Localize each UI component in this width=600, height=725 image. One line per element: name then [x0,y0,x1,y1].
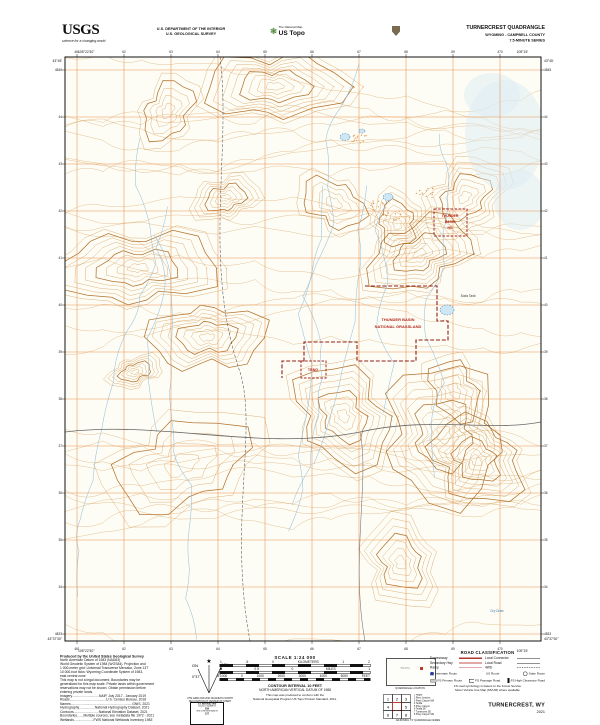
svg-text:43°37'30": 43°37'30" [544,637,559,641]
expressway-line [459,658,482,659]
svg-text:68: 68 [404,50,408,54]
fs-high-clearance-icon [507,678,509,683]
interstate-label: Interstate Route [435,672,457,676]
contour-interval: CONTOUR INTERVAL 10 FEET [205,684,385,689]
svg-text:4833: 4833 [55,632,62,636]
svg-text:66: 66 [310,647,314,651]
4wd-line [517,668,540,669]
svg-text:34: 34 [544,585,548,589]
fs-primary-icon [430,679,437,683]
fs-passage-label: FS Passage Road [475,679,500,683]
vertical-datum: NORTH AMERICAN VERTICAL DATUM OF 1988 [205,689,385,693]
usng-box: U.S. NATIONAL GRID 100,000-m SQUARE ID G… [190,702,224,725]
expressway-label: Expressway [430,657,459,661]
svg-text:67: 67 [357,50,361,54]
svg-text:THUNDER BASIN: THUNDER BASIN [381,317,414,322]
svg-text:42: 42 [58,209,62,213]
sheet-year: 2021 [400,710,545,715]
svg-text:4833: 4833 [544,632,551,636]
svg-text:38: 38 [58,397,62,401]
topo-map-canvas: THUNDERBASINNGTHUNDER BASINNATIONAL GRAS… [0,0,600,660]
svg-text:62: 62 [122,647,126,651]
svg-text:44: 44 [58,115,62,119]
adj-cell-4: 4 [387,704,390,709]
svg-text:42: 42 [544,209,548,213]
us-route-label: US Route [486,672,499,676]
svg-text:35: 35 [544,538,548,542]
svg-text:65: 65 [263,647,267,651]
svg-text:39: 39 [58,350,62,354]
standard-note-line2: National Geospatial Program US Topo Prod… [205,698,385,702]
svg-text:65: 65 [263,50,267,54]
svg-text:37: 37 [544,444,548,448]
sheet-title-block: TURNERCREST, WY 2021 [400,702,545,714]
svg-text:THUNDER: THUNDER [442,214,459,218]
svg-text:37: 37 [58,444,62,448]
gn-declination-value: 0°37' [192,675,200,679]
svg-text:43°45': 43°45' [52,59,62,63]
svg-text:38: 38 [544,397,548,401]
svg-text:105°22'30": 105°22'30" [78,50,95,54]
svg-text:43°37'30": 43°37'30" [47,637,62,641]
quad-location-dot [420,667,423,670]
adjoining-caption-wrap: ADJOINING 7.5' QUADRANGLE NAMES [370,719,466,722]
fs-passage-icon [469,679,474,683]
adj-cell-1: 1 [387,696,390,701]
interstate-shield-icon [430,672,434,676]
adj-cell-6: 6 [387,712,390,717]
svg-text:43°45': 43°45' [544,59,554,63]
adj-cell-2: 2 [396,696,399,701]
scale-block: SCALE 1:24 000 1.50KILOMETERS12 10.50MIL… [205,655,385,702]
roads-note-line2: Motor Vehicle Use Map (MVUM) where avail… [430,689,545,693]
svg-text:41: 41 [544,256,548,260]
sheet-name: TURNERCREST, WY [400,702,545,708]
svg-text:67: 67 [357,647,361,651]
adjoining-caption: ADJOINING 7.5' QUADRANGLE NAMES [370,719,466,722]
svg-text:43: 43 [58,162,62,166]
svg-text:64: 64 [216,647,220,651]
svg-text:62: 62 [122,50,126,54]
4wd-label: 4WD [485,666,517,670]
svg-text:Dry Draw: Dry Draw [490,609,504,613]
state-route-circle-icon [523,672,528,677]
state-name: Wyoming [387,667,423,669]
fs-primary-label: FS Primary Route [438,679,463,683]
adj-cell-7: 7 [396,712,399,717]
state-locator-map: Wyoming [386,658,436,686]
local-road-line [517,663,540,664]
usng-zone: 13T [191,712,223,715]
us-route-shield-icon [481,672,485,676]
production-credits: Produced by the United States Geological… [60,654,199,722]
svg-text:43: 43 [544,162,548,166]
svg-text:39: 39 [544,350,548,354]
feet-scale-bar [220,678,371,681]
svg-text:TBNG: TBNG [308,368,318,372]
svg-text:63: 63 [169,647,173,651]
svg-text:41: 41 [58,256,62,260]
svg-text:NG: NG [447,226,452,230]
svg-text:BASIN: BASIN [445,220,456,224]
credits-lines: North American Datum of 1983 (NAD83)Worl… [60,658,199,721]
svg-text:40: 40 [544,303,548,307]
svg-text:36: 36 [58,491,62,495]
secondary-hwy-label: Secondary Hwy [430,661,459,665]
svg-text:105°15': 105°15' [517,50,529,54]
svg-text:40: 40 [58,303,62,307]
local-connector-label: Local Connector [485,657,517,661]
svg-text:4845: 4845 [544,68,551,72]
svg-text:NATIONAL GRASSLAND: NATIONAL GRASSLAND [375,324,422,329]
secondary-hwy-line [459,663,482,664]
state-route-label: State Route [529,672,545,676]
roads-title: ROAD CLASSIFICATION [430,650,545,655]
svg-text:44: 44 [544,115,548,119]
svg-text:34: 34 [58,585,62,589]
svg-text:68: 68 [404,647,408,651]
svg-text:64: 64 [216,50,220,54]
svg-text:35: 35 [58,538,62,542]
grid-north-label: GN [192,663,198,668]
adj-cell-3: 3 [405,696,408,701]
svg-text:105°22'30": 105°22'30" [78,649,95,653]
fs-high-clearance-label: FS High Clearance Road [511,679,545,683]
svg-text:4845: 4845 [55,68,62,72]
svg-text:Soda Tank: Soda Tank [460,294,476,298]
scale-title: SCALE 1:24 000 [205,655,385,660]
ramp-label: Ramp [430,666,459,670]
local-road-label: Local Road [485,661,517,665]
svg-text:63: 63 [169,50,173,54]
local-connector-line [517,658,540,659]
svg-text:36: 36 [544,491,548,495]
road-classification-legend: ROAD CLASSIFICATION Expressway Local Con… [430,650,545,693]
svg-text:470: 470 [497,50,503,54]
ramp-line [459,668,482,669]
svg-text:66: 66 [310,50,314,54]
svg-text:69: 69 [451,50,455,54]
